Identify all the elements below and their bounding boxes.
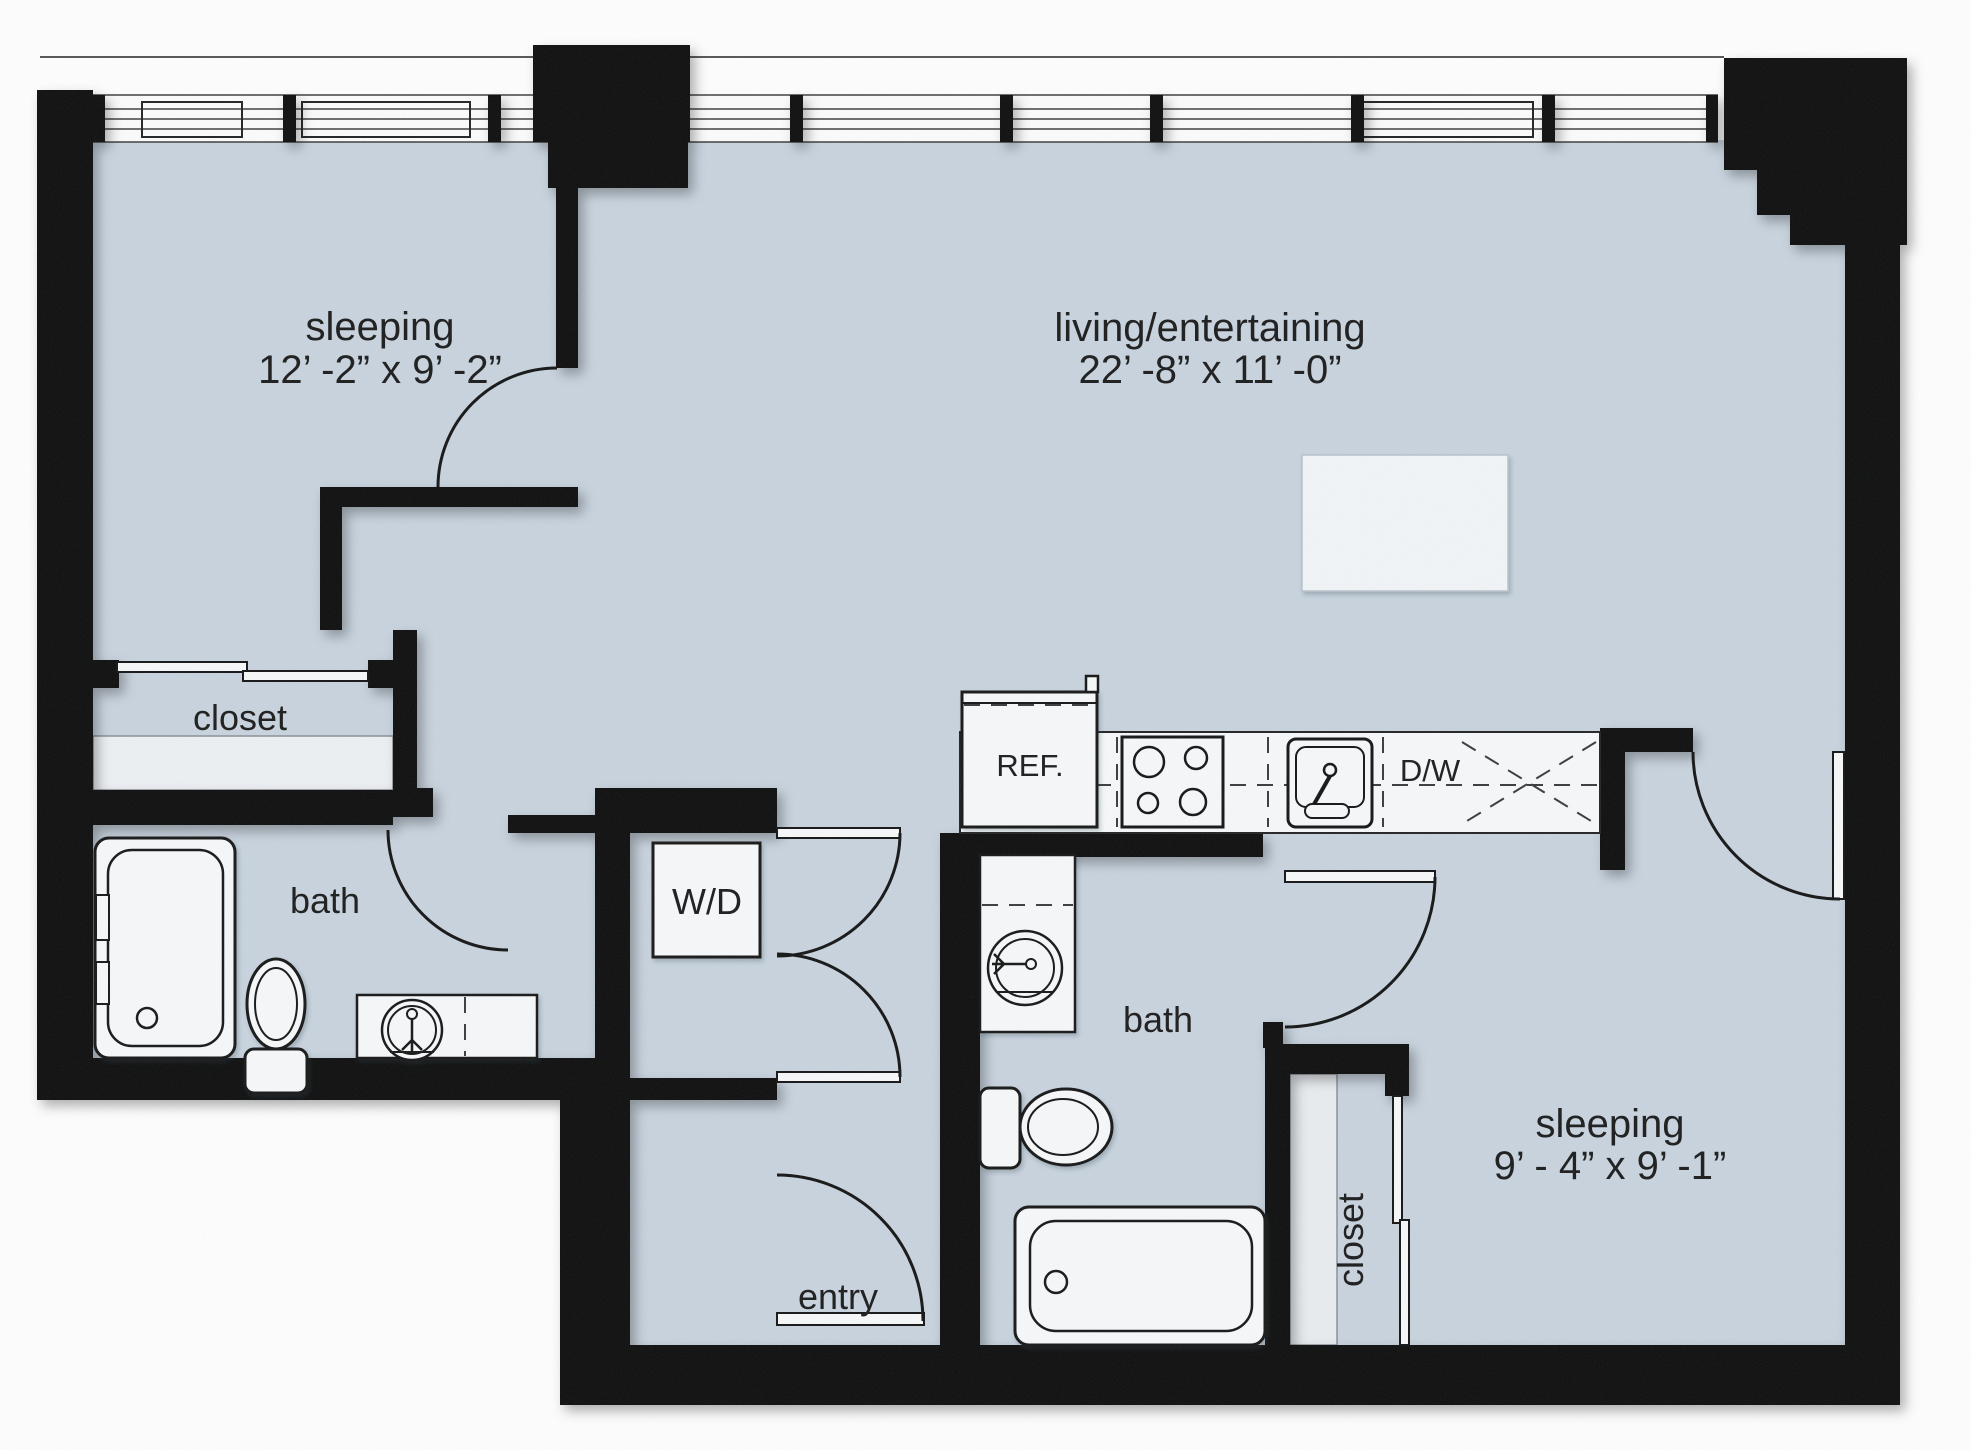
kitchen-faucet-base bbox=[1305, 804, 1349, 818]
wall-corner-block-1 bbox=[1724, 58, 1907, 170]
wall-column-base bbox=[548, 142, 688, 188]
wall-closet-right-top bbox=[1283, 1044, 1409, 1074]
wall-left-exterior bbox=[37, 90, 93, 1100]
wall-corner-block-2 bbox=[1757, 170, 1907, 215]
label-bath-right: bath bbox=[1123, 999, 1193, 1040]
wall-closet-right-left bbox=[1265, 1044, 1290, 1345]
coffee-table bbox=[1302, 455, 1508, 591]
wall-sleeping-living-divider bbox=[556, 188, 578, 368]
window-mullion bbox=[790, 95, 803, 142]
label-sleeping-right-dims: 9’ - 4” x 9’ -1” bbox=[1494, 1144, 1727, 1188]
window-mullion bbox=[488, 95, 501, 142]
label-entry: entry bbox=[798, 1276, 878, 1317]
closet-left-shelf bbox=[93, 736, 393, 790]
window-mullion bbox=[283, 95, 296, 142]
wall-window-stub-left bbox=[93, 95, 105, 142]
window-mullion bbox=[1000, 95, 1013, 142]
wall-closet-left-bottom bbox=[93, 790, 393, 825]
bathtub-left-deck-notch bbox=[96, 962, 109, 1004]
toilet-left-tank bbox=[245, 1049, 307, 1093]
door-leaf-wd-top bbox=[777, 828, 900, 838]
sliding-door-closet-left-b bbox=[243, 671, 368, 681]
wall-sleeping-bottom bbox=[320, 487, 578, 507]
label-closet-left: closet bbox=[193, 697, 287, 738]
wall-kitchen-end-vertical bbox=[1600, 728, 1625, 870]
wall-closet-left-stub-a bbox=[93, 660, 119, 688]
bathtub-right bbox=[1015, 1207, 1265, 1345]
floor-plan: sleeping 12’ -2” x 9’ -2” living/enterta… bbox=[0, 0, 1971, 1450]
wall-column-top bbox=[533, 45, 690, 142]
refrigerator-handle bbox=[1086, 676, 1098, 692]
wall-bath-left-door-stub bbox=[508, 815, 595, 833]
window-mullion bbox=[1351, 95, 1364, 142]
wall-sleeping-return bbox=[320, 487, 342, 630]
wall-closet-corner-post bbox=[393, 788, 433, 817]
wall-closet-right-corner bbox=[1385, 1074, 1409, 1096]
label-living: living/entertaining bbox=[1054, 306, 1365, 350]
label-refrigerator: REF. bbox=[996, 748, 1063, 783]
bathtub-left-deck-notch bbox=[96, 895, 109, 940]
wall-closet-left-right bbox=[393, 630, 417, 790]
wall-bath-left-bottom bbox=[37, 1058, 627, 1100]
sliding-door-closet-right-a bbox=[1393, 1096, 1402, 1223]
label-living-dims: 22’ -8” x 11’ -0” bbox=[1078, 348, 1341, 392]
floor-plan-drawing: sleeping 12’ -2” x 9’ -2” living/enterta… bbox=[0, 0, 1971, 1450]
label-closet-right: closet bbox=[1330, 1193, 1371, 1287]
label-washer-dryer: W/D bbox=[672, 881, 742, 922]
wall-closet-left-stub-b bbox=[368, 660, 397, 688]
sliding-door-closet-right-b bbox=[1400, 1220, 1409, 1345]
wall-hall-left bbox=[595, 788, 630, 1348]
wall-bottom-exterior bbox=[560, 1345, 1900, 1405]
wall-bath-right-left bbox=[940, 833, 980, 1345]
label-dishwasher: D/W bbox=[1400, 753, 1461, 788]
door-leaf-bath-right bbox=[1285, 871, 1435, 882]
toilet-right-tank bbox=[980, 1088, 1020, 1168]
label-sleeping-left: sleeping bbox=[305, 305, 454, 349]
sliding-door-closet-left-a bbox=[117, 662, 247, 672]
door-leaf-wd-bottom bbox=[777, 1072, 900, 1082]
stove bbox=[1122, 737, 1223, 827]
wall-bath-right-top bbox=[940, 833, 1263, 857]
wall-right-exterior bbox=[1845, 215, 1900, 1405]
wall-wd-bottom bbox=[595, 1078, 777, 1100]
bathtub-left-basin bbox=[108, 850, 223, 1046]
window-mullion bbox=[1150, 95, 1163, 142]
wall-window-stub-right bbox=[1706, 95, 1718, 142]
door-leaf-sleeping-right bbox=[1833, 752, 1844, 899]
label-bath-left: bath bbox=[290, 880, 360, 921]
label-sleeping-left-dims: 12’ -2” x 9’ -2” bbox=[258, 348, 502, 392]
wall-wd-top bbox=[595, 788, 777, 833]
label-sleeping-right: sleeping bbox=[1535, 1102, 1684, 1146]
window-mullion bbox=[1542, 95, 1555, 142]
